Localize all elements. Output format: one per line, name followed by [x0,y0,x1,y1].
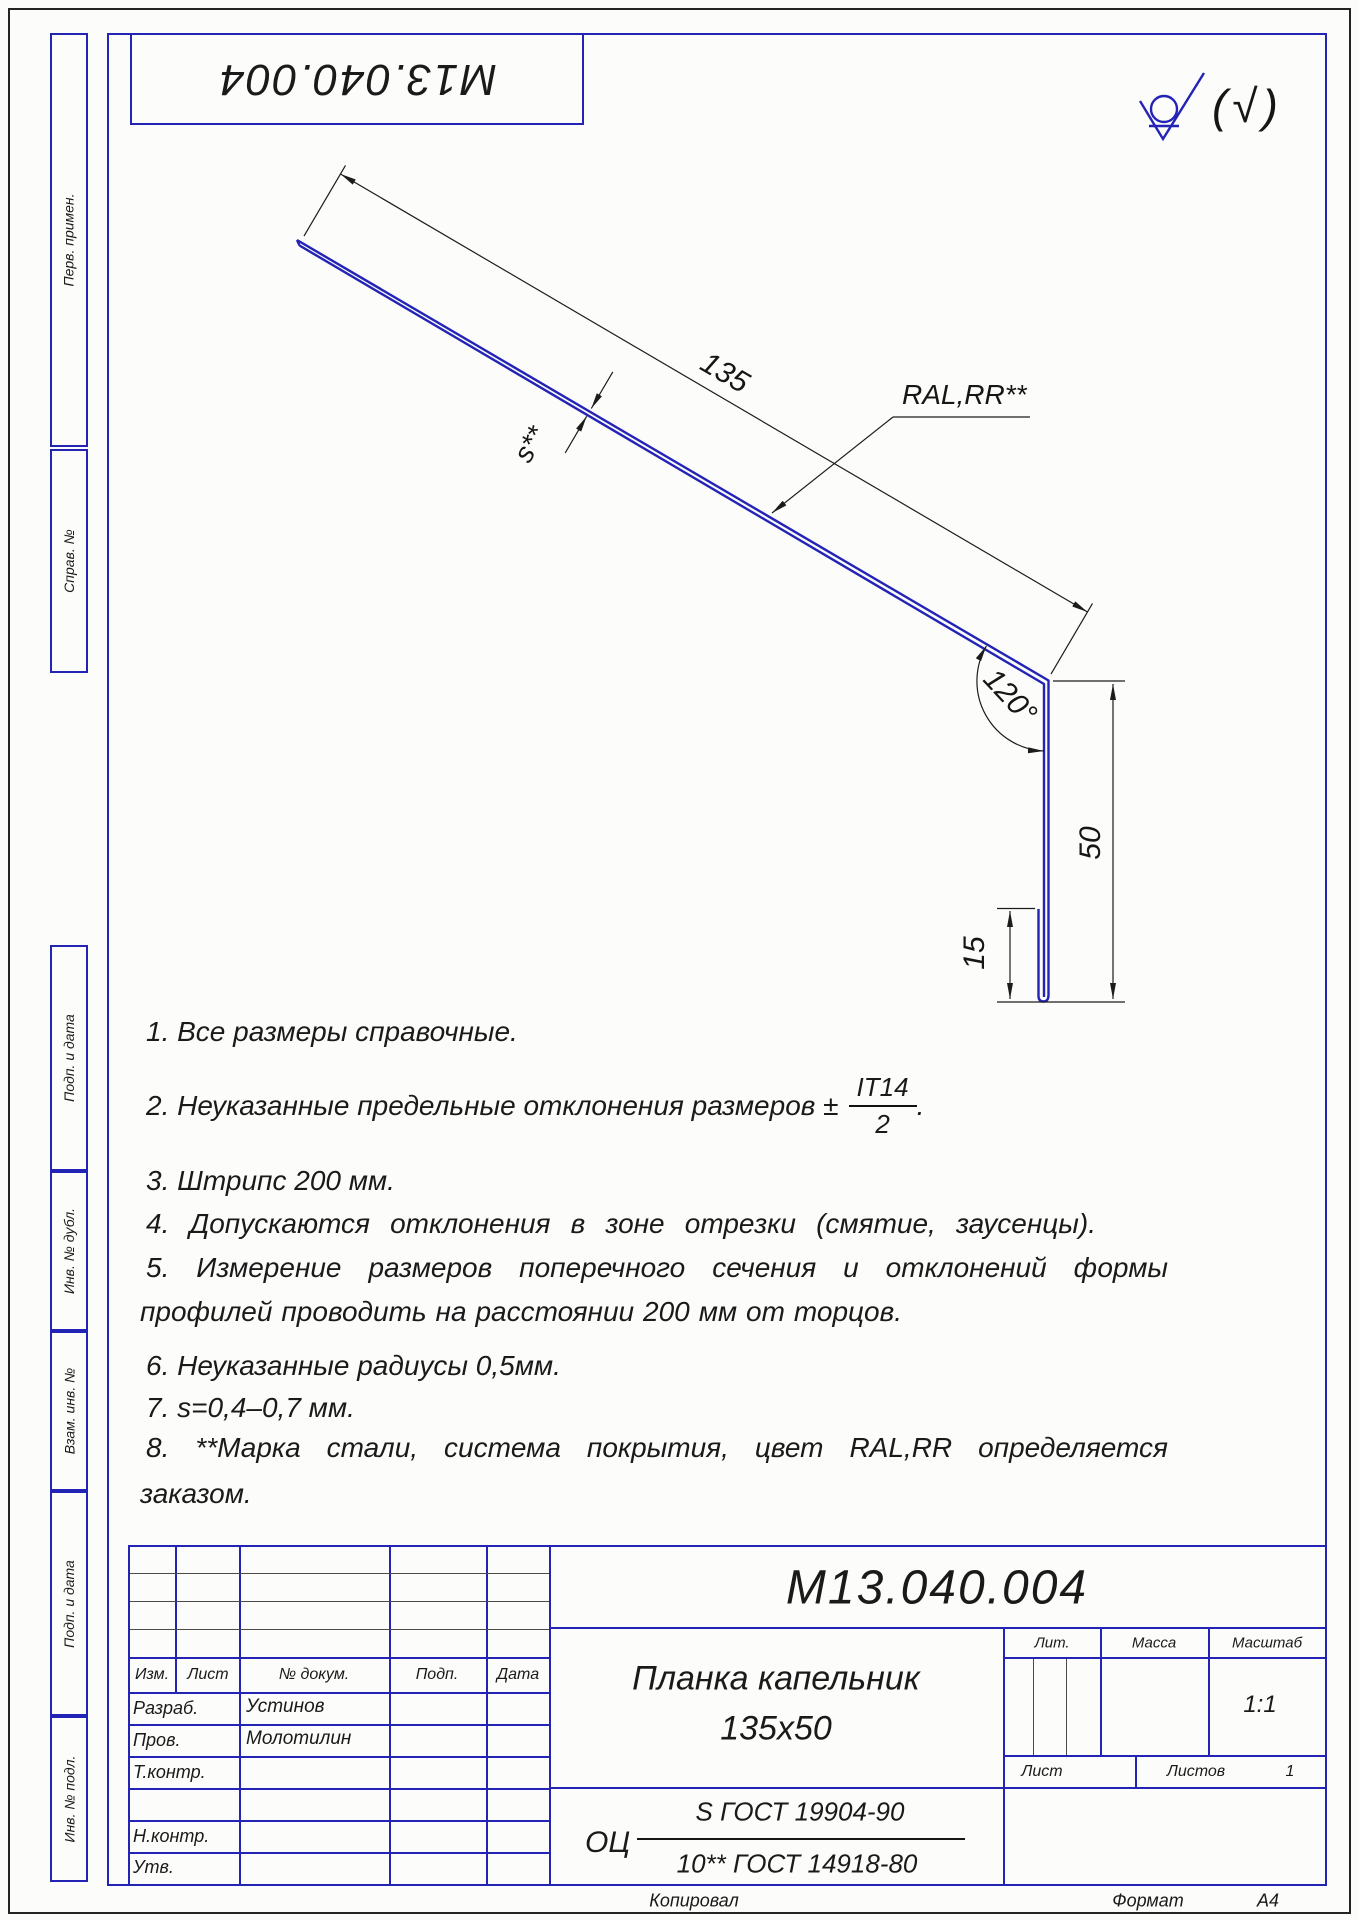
dim-50-label: 50 [1074,826,1107,860]
titleblock-line [549,1545,551,1884]
material-fraction-bar [637,1838,965,1840]
coating-label: RAL,RR** [902,379,1028,410]
row-label-prov: Пров. [133,1730,180,1751]
note-2: 2. Неуказанные предельные отклонения раз… [146,1070,924,1142]
margin-cell-inv-podl: Инв. № подл. [50,1716,88,1882]
revision-row-line [130,1601,549,1602]
note-2-period: . [917,1090,925,1122]
material-numerator: S ГОСТ 19904-90 [696,1797,905,1828]
titleblock-line [128,1545,130,1884]
titleblock-line [128,1788,551,1790]
titleblock-line [1208,1627,1210,1755]
dim-135-label: 135 [695,346,755,400]
margin-label: Инв. № дубл. [61,1208,77,1294]
listov-value: 1 [1286,1763,1295,1781]
coating-leader [772,417,1030,513]
titleblock-line [128,1545,1325,1547]
titleblock-line [128,1692,551,1694]
titleblock-doc-number: М13.040.004 [786,1561,1088,1616]
dim-15 [997,909,1035,1000]
material-prefix: ОЦ [585,1826,630,1860]
margin-label: Подп. и дата [61,1560,77,1648]
row-label-razrab: Разраб. [133,1698,198,1719]
razrab-name: Устинов [246,1696,325,1718]
part-name-line1: Планка капельник [632,1660,920,1699]
row-label-tkontr: Т.контр. [133,1762,206,1783]
row-label-nkontr: Н.контр. [133,1826,209,1847]
profile-outline [297,240,1049,1002]
lit-subcell-line [1066,1659,1067,1755]
lit-header: Лит. [1034,1635,1069,1652]
masshtab-header: Масштаб [1232,1635,1302,1652]
titleblock-line [549,1787,1325,1789]
titleblock-line [549,1627,1325,1629]
note-3: 3. Штрипс 200 мм. [146,1165,395,1197]
fraction-numerator: IT14 [849,1072,917,1107]
fraction-denominator: 2 [875,1107,889,1140]
list-label: Лист [1021,1763,1062,1781]
titleblock-line [128,1657,551,1659]
drawing-sheet: М13.040.004 Перв. примен. Справ. № Подп.… [0,0,1359,1920]
note-2-fraction: IT14 2 [849,1072,917,1140]
margin-label: Инв. № подл. [61,1756,77,1843]
note-6: 6. Неуказанные радиусы 0,5мм. [146,1350,561,1382]
note-1: 1. Все размеры справочные. [146,1016,518,1048]
titleblock-line [1003,1657,1325,1659]
listov-label: Листов [1167,1763,1225,1781]
margin-cell-podp-data-2: Подп. и дата [50,1491,88,1716]
row-label-utv: Утв. [133,1857,174,1878]
lit-subcell-line [1033,1659,1034,1755]
titleblock-line [1100,1627,1102,1755]
titleblock-line [1135,1755,1137,1787]
titleblock-line [239,1545,241,1884]
margin-cell-inv-dubl: Инв. № дубл. [50,1171,88,1331]
format-label: Формат [1112,1891,1183,1912]
scale-value: 1:1 [1243,1691,1276,1719]
profile-drawing: (√) 135 s** RAL,RR** 120° [0,0,1359,1020]
col-header-data: Дата [497,1666,539,1684]
col-header-podp: Подп. [416,1666,459,1684]
margin-label: Взам. инв. № [61,1368,77,1455]
titleblock-line [175,1545,177,1692]
revision-row-line [130,1573,549,1574]
titleblock-line [128,1820,551,1822]
note-8-line2: заказом. [140,1478,252,1510]
titleblock-line [128,1756,551,1758]
dim-thickness-label: s** [507,420,552,468]
massa-header: Масса [1132,1635,1176,1652]
col-header-dokum: № докум. [279,1666,349,1684]
titleblock-line [389,1545,391,1884]
titleblock-line [1003,1755,1325,1757]
note-8-line1: 8. **Марка стали, система покрытия, цвет… [146,1432,1168,1464]
margin-label: Подп. и дата [61,1014,77,1102]
note-2-text: 2. Неуказанные предельные отклонения раз… [146,1090,839,1122]
col-header-izm: Изм. [135,1666,169,1684]
note-4: 4. Допускаются отклонения в зоне отрезки… [146,1208,1096,1240]
roughness-paren-note: (√) [1212,80,1283,132]
roughness-symbol-icon [1140,73,1204,139]
revision-row-line [130,1629,549,1630]
prov-name: Молотилин [246,1728,351,1750]
format-value: А4 [1257,1891,1279,1912]
dim-15-label: 15 [958,936,991,970]
note-5-line1: 5. Измерение размеров поперечного сечени… [146,1252,1168,1284]
note-5-line2: профилей проводить на расстоянии 200 мм … [140,1296,902,1328]
margin-cell-vzam-inv: Взам. инв. № [50,1331,88,1491]
titleblock-line [486,1545,488,1884]
kopiroval-label: Копировал [649,1891,739,1912]
col-header-list: Лист [187,1666,228,1684]
titleblock-line [128,1724,551,1726]
note-7: 7. s=0,4–0,7 мм. [146,1392,355,1424]
material-denominator: 10** ГОСТ 14918-80 [677,1849,918,1880]
titleblock-line [128,1852,551,1854]
part-name-line2: 135х50 [720,1710,832,1749]
dim-135 [304,165,1093,674]
